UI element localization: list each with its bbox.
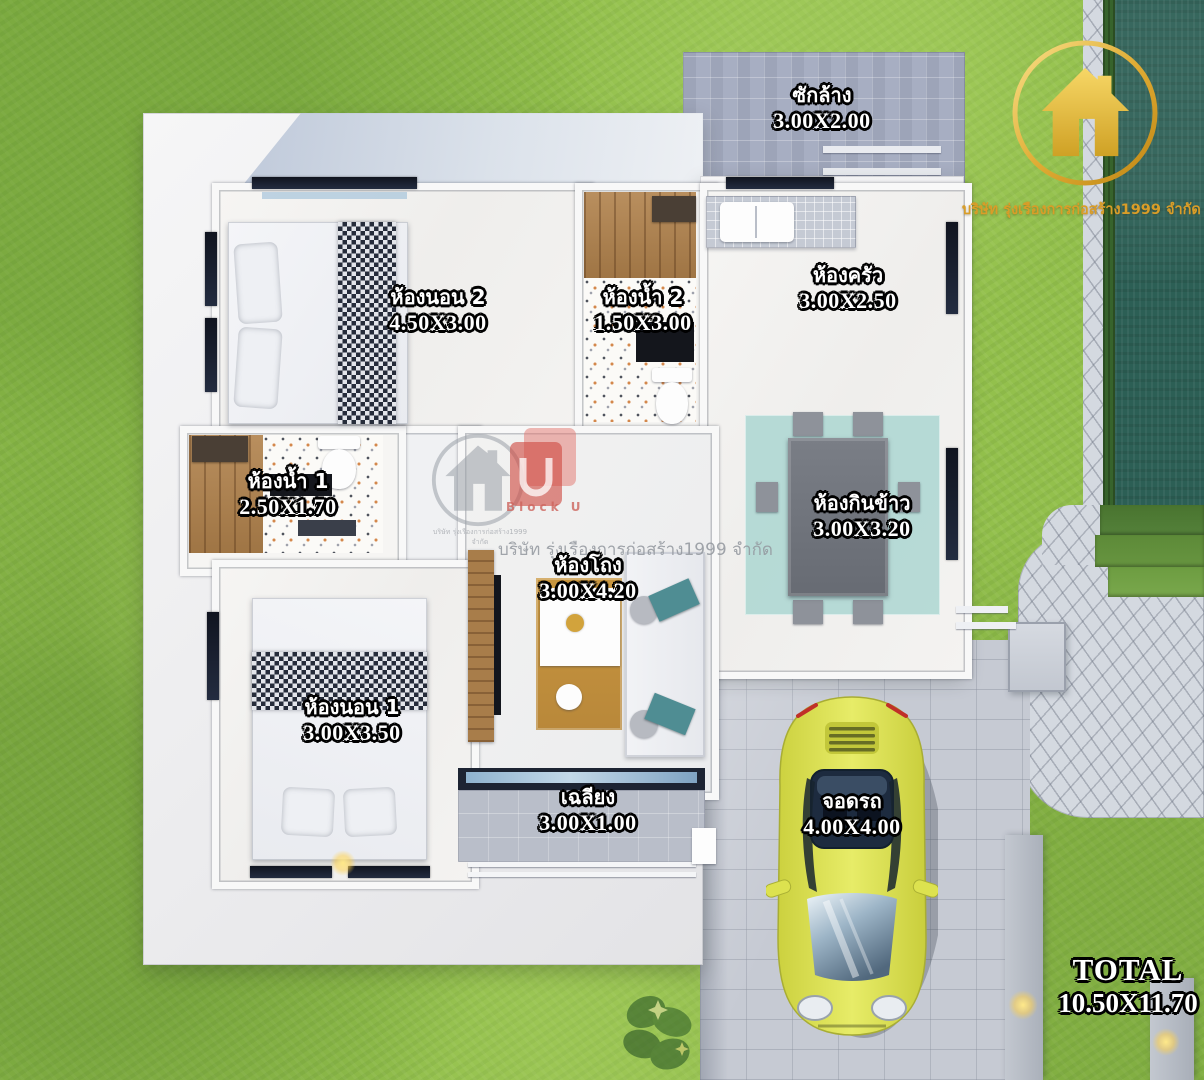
tv-console xyxy=(468,550,494,742)
floor-plan-render: บริษัท รุ่งเรืองการก่อสร้าง1999 จำกัด Bl… xyxy=(0,0,1204,1080)
yellow-car xyxy=(766,686,938,1038)
bed1-pillow-1 xyxy=(281,787,335,838)
room-label-hall: ห้องโถง3.00X4.20 xyxy=(498,552,678,603)
plant-watermark-icon xyxy=(612,982,704,1078)
garden-lamp-glow-1 xyxy=(1008,990,1038,1020)
dining-chair-2 xyxy=(853,412,883,436)
room-label-parking: จอดรถ4.00X4.00 xyxy=(762,788,942,839)
kitchen-top-window xyxy=(726,177,834,189)
room-label-bath1: ห้องน้ำ 12.50X1.70 xyxy=(198,468,378,519)
bedroom2-left-window-1 xyxy=(205,232,217,306)
ac-unit xyxy=(692,828,716,864)
porch-window-glass xyxy=(466,772,697,783)
dining-chair-3 xyxy=(793,600,823,624)
room-label-porch: เฉลียง3.00X1.00 xyxy=(498,784,678,835)
total-label: TOTAL 10.50X11.70 xyxy=(1038,952,1204,1019)
bath1-vanity xyxy=(192,436,248,462)
coffee-table-tray xyxy=(566,614,584,632)
hedge-tier-2 xyxy=(1095,535,1204,567)
bath1-toilet-tank xyxy=(318,436,360,449)
room-label-bedroom1: ห้องนอน 13.00X3.50 xyxy=(262,694,442,745)
patio-step-2 xyxy=(956,622,1016,629)
patio-cobblestone-upper xyxy=(1042,505,1102,565)
room-label-bath2: ห้องน้ำ 21.50X3.00 xyxy=(553,284,733,335)
bedroom1-left-window xyxy=(207,612,219,700)
bath1-dark-mat xyxy=(298,520,356,536)
porch-step-2 xyxy=(468,872,696,877)
outdoor-unit-box xyxy=(1008,622,1066,692)
room-label-dining: ห้องกินข้าว3.00X3.20 xyxy=(772,490,952,541)
bath2-toilet-tank xyxy=(652,368,692,382)
dining-chair-1 xyxy=(793,412,823,436)
porch-lamp-glow xyxy=(330,850,356,876)
kitchen-sink xyxy=(720,202,794,242)
bath2-vanity xyxy=(652,196,696,222)
gold-company-text: บริษัท รุ่งเรืองการก่อสร้าง1999 จำกัด xyxy=(962,198,1201,221)
room-label-kitchen: ห้องครัว3.00X2.50 xyxy=(758,262,938,313)
bedroom1-bottom-window-1 xyxy=(250,866,332,878)
hall-decor-plate xyxy=(556,684,582,710)
bedroom2-left-window-2 xyxy=(205,318,217,392)
kitchen-right-window xyxy=(946,222,958,314)
laundry-step-2 xyxy=(823,168,941,175)
bedroom1-bottom-window-2 xyxy=(348,866,430,878)
bedroom2-top-window xyxy=(252,177,417,189)
room-label-laundry: ซักล้าง3.00X2.00 xyxy=(732,82,912,133)
hedge-tier-1 xyxy=(1100,505,1204,535)
patio-step-1 xyxy=(956,606,1008,613)
laundry-step-1 xyxy=(823,146,941,153)
kitchen-sink-divider xyxy=(755,206,757,238)
bed2-pillow-1 xyxy=(233,242,282,325)
bedroom2-window-glass xyxy=(262,192,407,199)
dining-chair-4 xyxy=(853,600,883,624)
bed1-pillow-2 xyxy=(343,787,397,838)
bath2-toilet-bowl xyxy=(656,382,688,424)
bed2-pillow-2 xyxy=(233,327,282,410)
blocku-label: Block U xyxy=(506,500,596,514)
porch-step-1 xyxy=(468,862,696,867)
hedge-tier-3 xyxy=(1108,567,1204,597)
room-label-bedroom2: ห้องนอน 24.50X3.00 xyxy=(348,284,528,335)
garden-lamp-glow-2 xyxy=(1152,1028,1180,1056)
gold-house-logo-icon xyxy=(1000,28,1170,198)
